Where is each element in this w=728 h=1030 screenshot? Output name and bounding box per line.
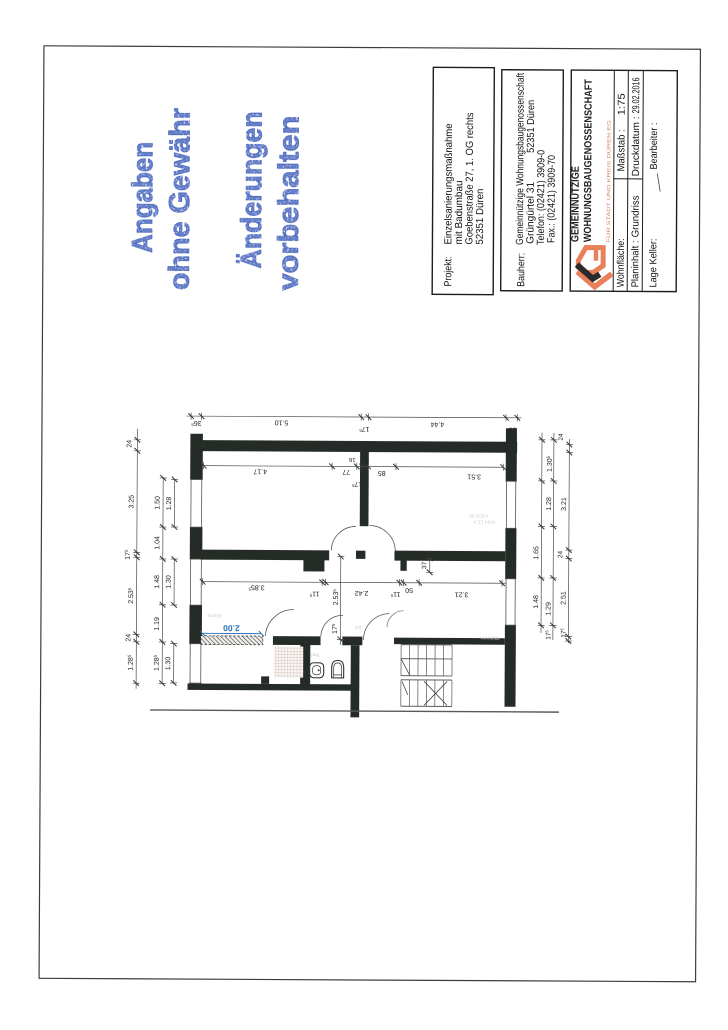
svg-text:Bearbeiter :: Bearbeiter : [649,122,660,169]
svg-text:4.44: 4.44 [431,420,445,427]
svg-text:Planinhalt :: Planinhalt : [630,240,641,287]
svg-text:2.535: 2.535 [332,589,340,606]
svg-text:2.42: 2.42 [355,589,369,596]
svg-text:1.04: 1.04 [154,536,161,550]
svg-text:37: 37 [421,561,428,569]
svg-text:Lage Keller:: Lage Keller: [648,238,659,287]
svg-text:175: 175 [124,549,132,560]
svg-text:Bauherr:: Bauherr: [516,253,527,287]
svg-text:3.25: 3.25 [129,495,136,509]
svg-text:50: 50 [405,586,413,593]
svg-text:GEMEINNÜTZIGE: GEMEINNÜTZIGE [568,166,581,242]
svg-text:1.30: 1.30 [166,575,173,589]
svg-text:vorbehalten: vorbehalten [273,116,306,291]
svg-text:Wohnen: Wohnen [481,635,500,641]
svg-text:5.10: 5.10 [275,419,289,426]
svg-text:24: 24 [557,551,564,559]
svg-text:1.305: 1.305 [546,455,554,472]
svg-text:24: 24 [558,433,565,441]
svg-text:1.285: 1.285 [127,654,135,671]
svg-text:Druckdatum :: Druckdatum : [631,116,642,176]
svg-text:24: 24 [126,440,133,448]
svg-text:175: 175 [351,480,362,488]
svg-text:1.48: 1.48 [533,595,540,609]
svg-text:52351 Düren: 52351 Düren [526,100,537,153]
svg-text:Änderungen: Änderungen [236,111,269,268]
svg-text:1.65: 1.65 [533,546,540,560]
svg-text:Bad: Bad [311,653,320,658]
svg-text:29.02.2016: 29.02.2016 [631,77,642,113]
svg-text:Maßstab :: Maßstab : [616,129,627,171]
svg-text:1.29: 1.29 [545,602,552,616]
svg-text:Küche: Küche [207,612,221,618]
svg-text:16: 16 [348,456,355,462]
svg-text:115: 115 [309,590,319,598]
svg-text:1.30: 1.30 [165,657,172,671]
svg-text:Grundriss: Grundriss [630,195,641,237]
svg-text:Fax.: (02421) 3909-70: Fax.: (02421) 3909-70 [546,155,557,243]
svg-text:24: 24 [125,634,132,642]
svg-text:1:75: 1:75 [617,93,628,116]
svg-text:365: 365 [191,419,202,427]
svg-text:1.28: 1.28 [166,497,173,511]
svg-text:1.28: 1.28 [546,497,553,511]
svg-text:3.51: 3.51 [467,473,481,480]
svg-text:85: 85 [378,469,386,476]
svg-text:3.855: 3.855 [248,583,265,591]
svg-text:52351 Düren: 52351 Düren [475,188,486,244]
svg-text:365: 365 [506,426,517,434]
svg-text:Projekt:: Projekt: [443,256,454,286]
svg-text:2.535: 2.535 [127,587,135,604]
svg-text:ohne Gewähr: ohne Gewähr [164,108,197,290]
svg-text:Angaben: Angaben [127,142,160,253]
svg-text:1.285: 1.285 [153,654,161,671]
svg-text:175: 175 [359,425,370,433]
svg-text:3.21: 3.21 [455,590,469,597]
svg-text:175: 175 [331,623,339,634]
svg-text:175: 175 [544,629,552,639]
svg-text:77: 77 [342,468,350,475]
svg-text:4,20/2,95: 4,20/2,95 [469,514,488,519]
svg-text:115: 115 [390,590,400,598]
svg-text:1.50: 1.50 [155,496,162,510]
svg-text:4.17: 4.17 [253,467,267,474]
svg-text:175: 175 [559,628,567,638]
svg-text:Wohnfläche:: Wohnfläche: [616,238,627,287]
svg-text:2.00: 2.00 [223,623,240,633]
svg-text:WOHNUNGSBAUGENOSSENSCHAFT: WOHNUNGSBAUGENOSSENSCHAFT [582,79,595,243]
svg-text:1.19: 1.19 [154,617,161,631]
svg-text:3.21: 3.21 [561,497,568,511]
svg-text:Ein: Ein [354,625,361,630]
svg-text:1.48: 1.48 [154,575,161,589]
svg-text:2.51: 2.51 [561,591,568,605]
